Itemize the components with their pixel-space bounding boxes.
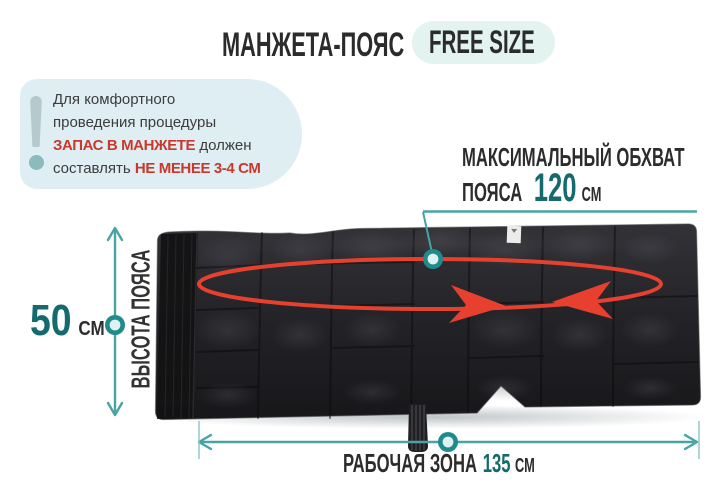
belt-height-value: 50: [30, 296, 72, 345]
anchor-dot-girth: [423, 249, 443, 269]
working-zone-label: РАБОЧАЯ ЗОНА: [343, 448, 477, 478]
belt-height-unit: СМ: [78, 318, 104, 340]
product-infographic: МАНЖЕТА-ПОЯС FREE SIZE Для комфортного п…: [0, 0, 720, 492]
note-line-1: Для комфортного: [53, 88, 260, 111]
belt-height-value-row: 50СМ: [30, 296, 118, 346]
working-zone-unit: СМ: [515, 455, 535, 477]
note-line-3: ЗАПАС В МАНЖЕТЕ должен: [53, 134, 260, 157]
note-line-4: составлять НЕ МЕНЕЕ 3-4 СМ: [53, 157, 260, 180]
comfort-note-text: Для комфортного проведения процедуры ЗАП…: [53, 88, 260, 180]
max-girth-value-row: ПОЯСА120СМ: [462, 166, 680, 211]
air-hose: [408, 404, 428, 452]
velcro-strip: [157, 233, 198, 419]
exclamation-icon: [30, 96, 42, 147]
free-size-badge: FREE SIZE: [412, 21, 555, 64]
exclamation-dot-icon: [29, 155, 44, 170]
free-size-badge-label: FREE SIZE: [429, 24, 535, 61]
belt-illustration: [0, 0, 720, 492]
working-zone-value: 135: [483, 448, 511, 478]
max-girth-unit: СМ: [582, 184, 602, 206]
note-line-2: проведения процедуры: [53, 111, 260, 134]
working-zone-row: РАБОЧАЯ ЗОНА135СМ: [343, 448, 643, 479]
comfort-note: Для комфортного проведения процедуры ЗАП…: [20, 79, 302, 189]
max-girth-label2: ПОЯСА: [462, 177, 522, 207]
belt-height-label: ВЫСОТА ПОЯСА: [126, 250, 157, 389]
max-girth-value: 120: [534, 166, 577, 210]
label-tag: [507, 226, 522, 243]
